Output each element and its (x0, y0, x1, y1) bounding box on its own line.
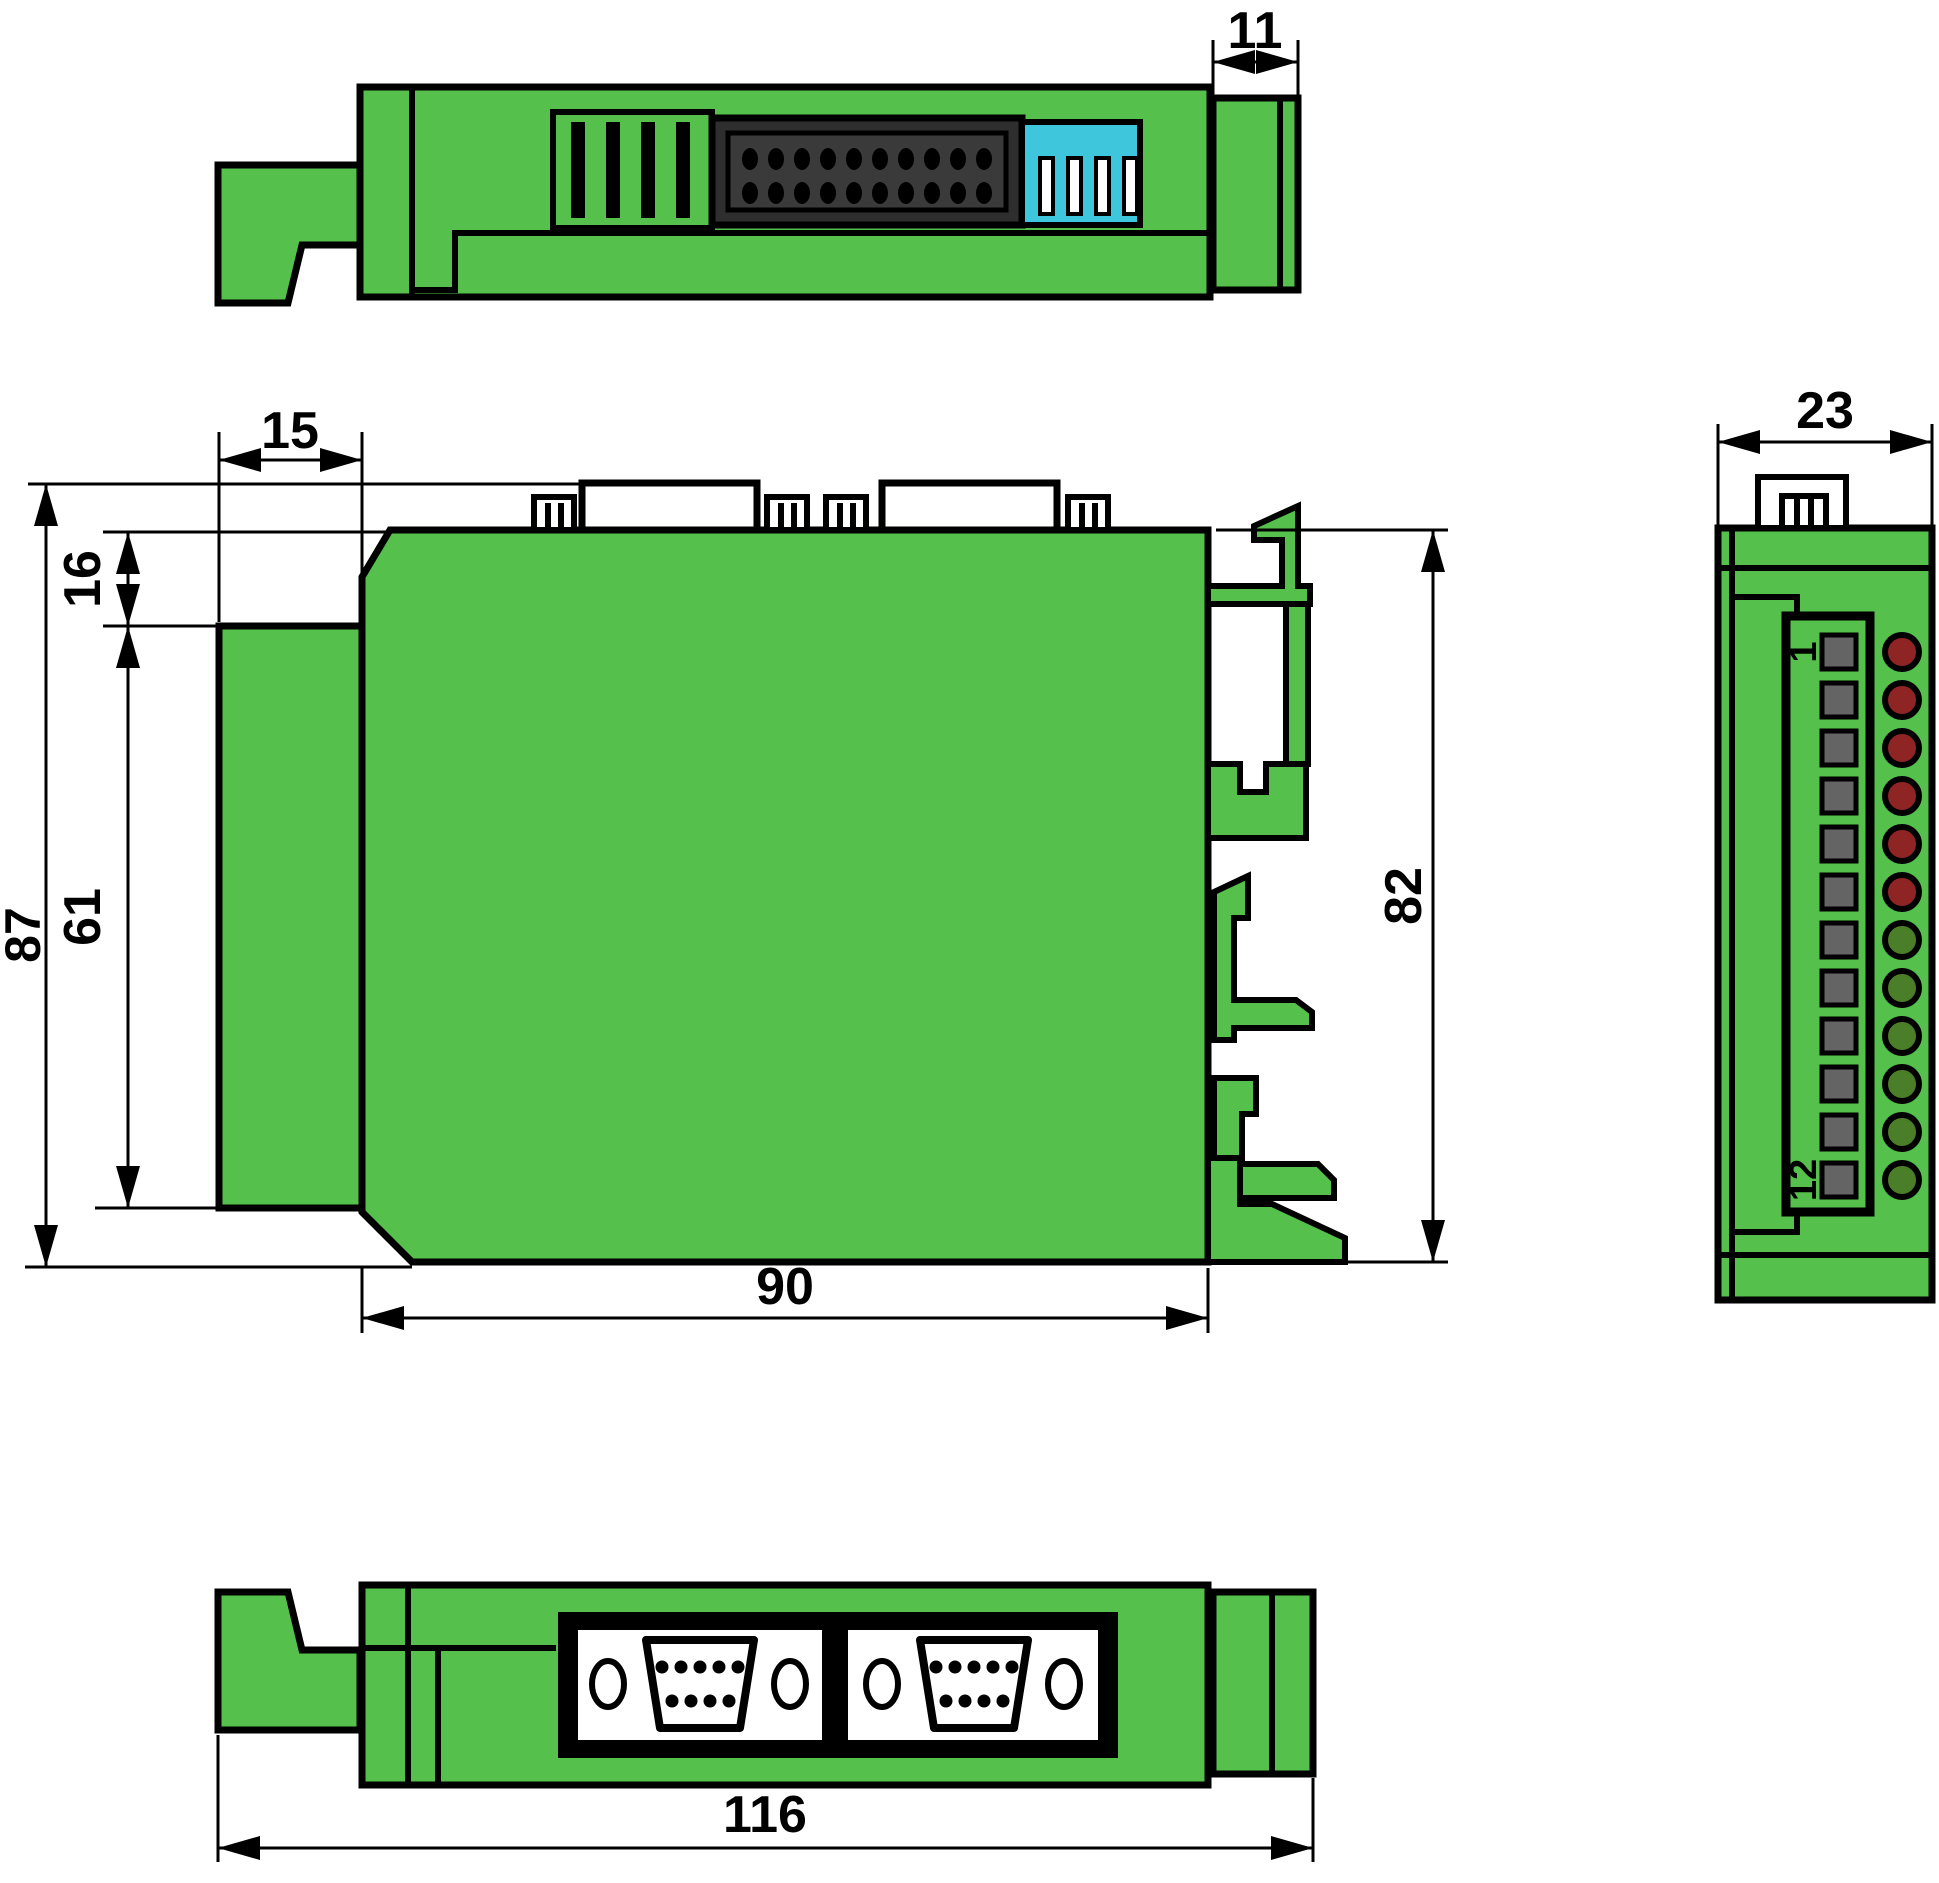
led-5-red (1885, 827, 1919, 861)
dip-slot (1040, 158, 1053, 214)
db9-shell (646, 1640, 754, 1728)
led-12-green (1885, 1163, 1919, 1197)
dip-slot (1068, 158, 1081, 214)
led-6-red (1885, 875, 1919, 909)
arrowhead (1421, 1220, 1445, 1262)
dip-slot (1096, 158, 1109, 214)
dim-label-15: 15 (261, 402, 319, 460)
db9-shell-side-1 (582, 483, 757, 530)
terminal-screw-3 (1822, 731, 1856, 765)
led-2-red (1885, 683, 1919, 717)
led-11-green (1885, 1115, 1919, 1149)
idc-pin (976, 182, 992, 204)
dim-label-90: 90 (756, 1258, 814, 1316)
arrowhead (34, 1225, 58, 1267)
din-clip-block (1208, 764, 1306, 838)
idc-pin (820, 148, 836, 170)
top-view: 11 (218, 2, 1298, 303)
db9-pin (1006, 1661, 1019, 1674)
db9-pin (978, 1695, 991, 1708)
arrowhead (116, 1166, 140, 1208)
front-top-tab (1758, 477, 1846, 528)
db9-screw-hole (866, 1661, 898, 1707)
idc-pin (820, 182, 836, 204)
idc-pin (742, 148, 758, 170)
terminal-screw-2 (1822, 683, 1856, 717)
idc-pin (950, 182, 966, 204)
vent-slat (571, 122, 585, 218)
db9-pin (713, 1661, 726, 1674)
db9-pin (997, 1695, 1010, 1708)
db9-pin (949, 1661, 962, 1674)
led-4-red (1885, 779, 1919, 813)
db9-shell-side-2 (882, 483, 1057, 530)
db9-pin (704, 1695, 717, 1708)
bottom-view-extension (1213, 1592, 1313, 1774)
bottom-view: 116 (218, 1585, 1313, 1862)
dim-label-116: 116 (723, 1786, 807, 1844)
arrowhead (1718, 430, 1760, 454)
screw-post-3 (826, 497, 866, 530)
terminal-screw-11 (1822, 1115, 1856, 1149)
terminal-label-last: 12 (1783, 1159, 1825, 1201)
vent-slat (641, 122, 655, 218)
db9-pin (656, 1661, 669, 1674)
arrowhead (116, 532, 140, 574)
side-view-body (362, 530, 1208, 1262)
idc-pin (976, 148, 992, 170)
idc-pin (794, 182, 810, 204)
idc-pin (898, 148, 914, 170)
idc-pin (742, 182, 758, 204)
dimension-11: 11 (1213, 2, 1298, 96)
dimension-15: 15 (219, 402, 362, 622)
terminal-label-first: 1 (1783, 641, 1825, 662)
arrowhead (116, 626, 140, 668)
db9-pin (666, 1695, 679, 1708)
dimensional-drawing: 11 (0, 0, 1939, 1883)
led-8-green (1885, 971, 1919, 1005)
arrowhead (1890, 430, 1932, 454)
led-1-red (1885, 635, 1919, 669)
terminal-screw-4 (1822, 779, 1856, 813)
arrowhead (116, 584, 140, 626)
db9-pin (959, 1695, 972, 1708)
arrowhead (1166, 1306, 1208, 1330)
idc-pin (924, 148, 940, 170)
idc-pin (872, 182, 888, 204)
screw-post-4 (1068, 497, 1108, 530)
dimension-61: 61 (54, 626, 219, 1208)
top-view-latch (218, 165, 360, 303)
db9-pin (732, 1661, 745, 1674)
arrowhead (320, 448, 362, 472)
arrowhead (1271, 1836, 1313, 1860)
db9-screw-hole (592, 1661, 624, 1707)
arrowhead (1421, 530, 1445, 572)
screw-post-2 (767, 497, 807, 530)
arrowhead (219, 448, 261, 472)
arrowhead (34, 484, 58, 526)
din-clip-spring-upper (1214, 876, 1312, 1040)
dim-label-23: 23 (1796, 382, 1854, 440)
dim-label-82: 82 (1375, 867, 1433, 925)
idc-pin (846, 148, 862, 170)
dim-label-87: 87 (0, 907, 51, 963)
terminal-screw-12 (1822, 1163, 1856, 1197)
vent-slat (606, 122, 620, 218)
db9-pin (685, 1695, 698, 1708)
dimension-16: 16 (54, 532, 388, 626)
terminal-screw-10 (1822, 1067, 1856, 1101)
terminal-screw-1 (1822, 635, 1856, 669)
terminal-screw-6 (1822, 875, 1856, 909)
db9-screw-hole (774, 1661, 806, 1707)
led-10-green (1885, 1067, 1919, 1101)
idc-pin (846, 182, 862, 204)
idc-pin (768, 148, 784, 170)
terminal-screw-9 (1822, 1019, 1856, 1053)
idc-pin (768, 182, 784, 204)
dim-label-16: 16 (54, 550, 112, 608)
idc-pin (898, 182, 914, 204)
side-view-latch (219, 626, 362, 1208)
top-view-extension (1213, 98, 1298, 290)
db9-pin (930, 1661, 943, 1674)
idc-pin (924, 182, 940, 204)
db9-pin (675, 1661, 688, 1674)
vent-slat (676, 122, 690, 218)
idc-pin (794, 148, 810, 170)
db9-shell (920, 1640, 1028, 1728)
side-view: 15 16 61 87 90 (0, 402, 1448, 1333)
terminal-screw-5 (1822, 827, 1856, 861)
led-9-green (1885, 1019, 1919, 1053)
arrowhead (218, 1836, 260, 1860)
db9-pin (940, 1695, 953, 1708)
dimension-90: 90 (362, 1258, 1208, 1333)
bottom-view-latch (218, 1592, 360, 1730)
led-7-green (1885, 923, 1919, 957)
din-clip-hook (1208, 506, 1310, 604)
idc-pin (950, 148, 966, 170)
terminal-screw-7 (1822, 923, 1856, 957)
dip-slot (1124, 158, 1137, 214)
top-edge-connectors (534, 483, 1108, 530)
arrowhead (362, 1306, 404, 1330)
din-rail-clip (1208, 506, 1345, 1262)
terminal-screw-8 (1822, 971, 1856, 1005)
idc-pin (872, 148, 888, 170)
db9-screw-hole (1048, 1661, 1080, 1707)
db9-pin (723, 1695, 736, 1708)
db9-pin (968, 1661, 981, 1674)
led-3-red (1885, 731, 1919, 765)
dim-label-61: 61 (54, 888, 112, 946)
db9-pin (694, 1661, 707, 1674)
db9-pin (987, 1661, 1000, 1674)
front-view: 1 12 23 (1718, 382, 1932, 1300)
din-clip-wall (1286, 604, 1308, 764)
screw-post-1 (534, 497, 574, 530)
